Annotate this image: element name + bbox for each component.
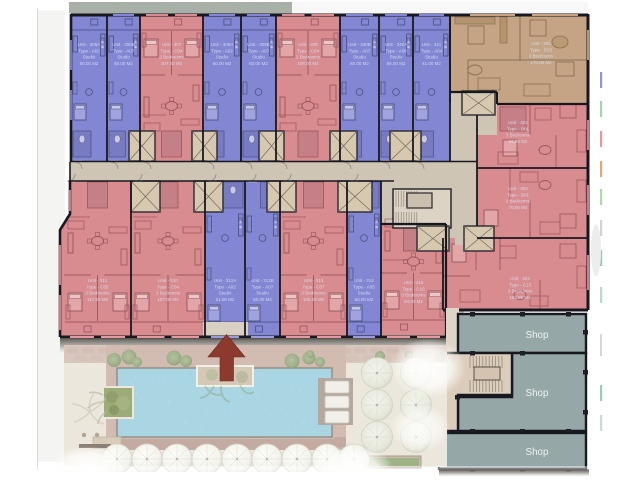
svg-text:Unit - 311Type - C053 Bedrooms: Unit - 311Type - C053 Bedrooms117.00 M2 <box>85 278 110 302</box>
svg-text:Unit - 303Type - D012 Bedrooms: Unit - 303Type - D012 Bedrooms70.00 M2 <box>506 186 531 210</box>
svg-text:Unit - 304Type - C133 Bedrooms: Unit - 304Type - C133 Bedrooms155.90 M2 <box>508 276 533 300</box>
svg-text:Shop: Shop <box>526 447 549 458</box>
svg-text:Unit - 302Type - D013 Bedrooms: Unit - 302Type - D013 Bedrooms96.00 M2 <box>506 120 531 144</box>
svg-text:Unit - 310Type - C043 Bedrooms: Unit - 310Type - C043 Bedrooms107.00 M2 <box>156 278 181 302</box>
svg-text:Unit - 307Type - C042 Bedrooms: Unit - 307Type - C042 Bedrooms107.00 M2 <box>159 42 184 66</box>
svg-text:Unit - 301Type - D023 Bedrooms: Unit - 301Type - D023 Bedrooms170.00 M2 <box>529 41 554 65</box>
svg-text:Shop: Shop <box>526 388 549 399</box>
svg-text:Unit - 309Type - C042 Bedrooms: Unit - 309Type - C042 Bedrooms108.00 M2 <box>296 42 321 66</box>
svg-text:Unit - 313Type - C073 Bedrooms: Unit - 313Type - C073 Bedrooms105.00 M2 <box>301 278 326 302</box>
svg-text:Unit - 315Type - C103 Bedrooms: Unit - 315Type - C103 Bedrooms84.00 M2 <box>401 280 426 304</box>
svg-text:Shop: Shop <box>526 330 549 341</box>
